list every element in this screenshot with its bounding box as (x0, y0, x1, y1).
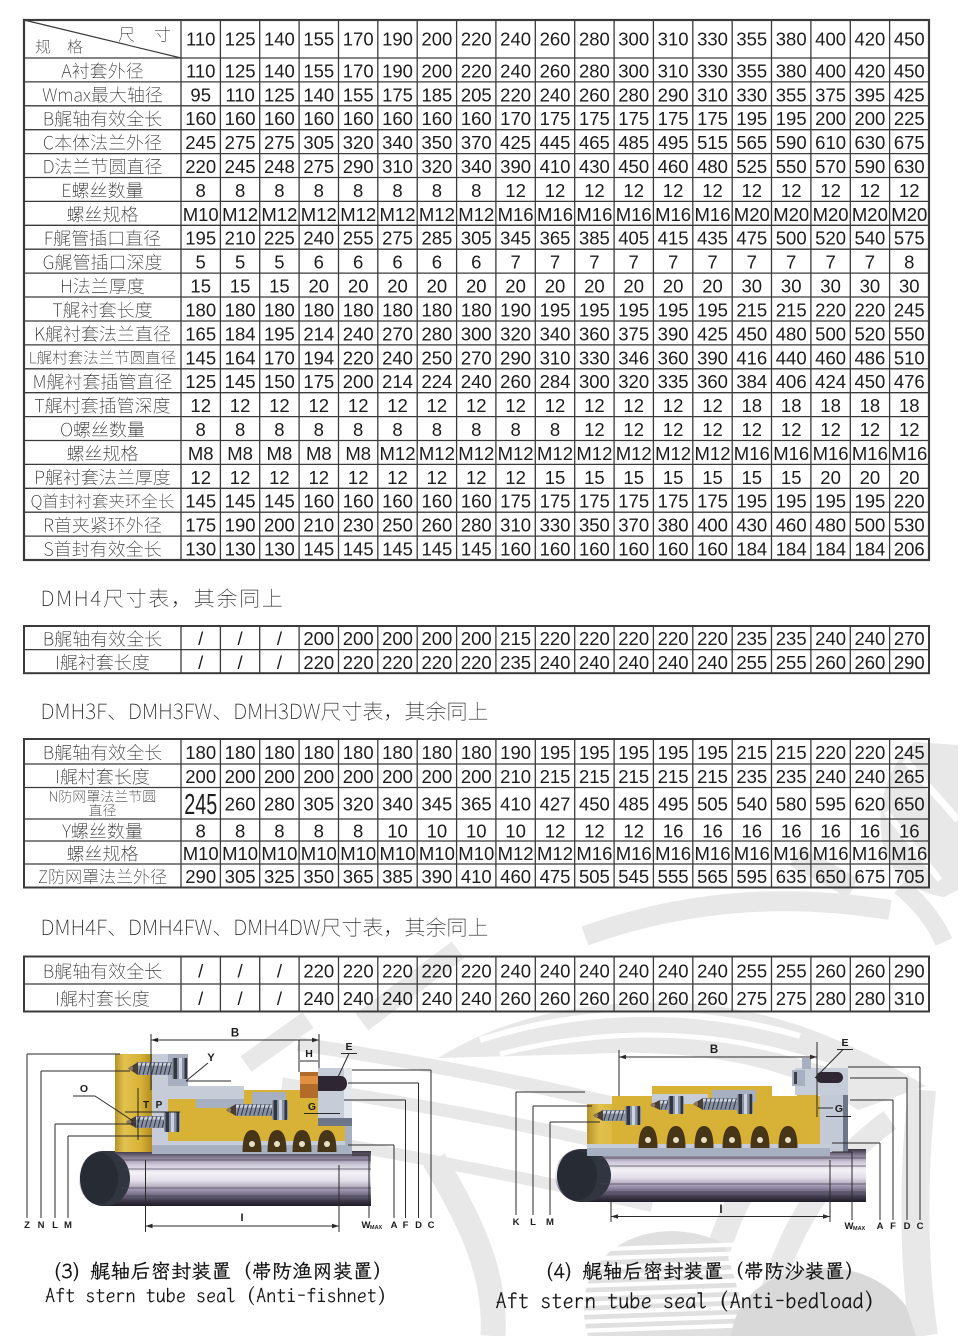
svg-text:240: 240 (658, 961, 689, 982)
svg-text:240: 240 (579, 652, 610, 673)
svg-text:M20: M20 (813, 204, 849, 225)
svg-text:C: C (428, 1220, 435, 1231)
svg-text:N: N (38, 1220, 45, 1231)
svg-text:480: 480 (776, 323, 807, 344)
svg-text:630: 630 (894, 156, 925, 177)
svg-text:515: 515 (697, 132, 728, 153)
svg-text:240: 240 (500, 60, 531, 81)
svg-text:12: 12 (269, 395, 290, 416)
svg-text:12: 12 (702, 180, 723, 201)
svg-text:8: 8 (274, 419, 284, 440)
svg-text:195: 195 (697, 300, 728, 321)
svg-text:140: 140 (264, 29, 295, 50)
svg-text:215: 215 (736, 300, 767, 321)
svg-text:300: 300 (618, 29, 649, 50)
svg-text:240: 240 (500, 29, 531, 50)
svg-text:275: 275 (736, 988, 767, 1009)
svg-text:7: 7 (825, 252, 835, 273)
svg-text:425: 425 (894, 84, 925, 105)
svg-text:110: 110 (186, 29, 216, 50)
svg-text:M10: M10 (380, 843, 416, 864)
svg-text:180: 180 (382, 742, 413, 763)
svg-text:125: 125 (185, 371, 216, 392)
svg-text:590: 590 (854, 156, 885, 177)
svg-text:8: 8 (274, 180, 284, 201)
svg-text:240: 240 (461, 371, 492, 392)
svg-text:M16: M16 (576, 204, 612, 225)
svg-text:15: 15 (190, 276, 211, 297)
svg-text:M12: M12 (576, 443, 612, 464)
svg-text:406: 406 (776, 371, 807, 392)
svg-text:495: 495 (658, 794, 689, 815)
svg-text:125: 125 (225, 29, 256, 50)
svg-text:195: 195 (776, 108, 807, 129)
svg-text:395: 395 (854, 84, 885, 105)
svg-text:5: 5 (235, 252, 245, 273)
svg-text:8: 8 (471, 419, 481, 440)
svg-text:220: 220 (382, 652, 413, 673)
svg-text:280: 280 (461, 515, 492, 536)
svg-text:30: 30 (820, 276, 841, 297)
svg-text:275: 275 (303, 156, 334, 177)
svg-text:190: 190 (225, 515, 256, 536)
svg-text:8: 8 (235, 419, 245, 440)
svg-text:175: 175 (303, 371, 334, 392)
svg-text:7: 7 (668, 252, 678, 273)
svg-text:145: 145 (461, 539, 492, 560)
svg-text:M16: M16 (616, 843, 652, 864)
svg-text:260: 260 (815, 652, 846, 673)
svg-text:290: 290 (185, 866, 216, 887)
svg-text:145: 145 (185, 347, 216, 368)
svg-text:155: 155 (303, 60, 334, 81)
svg-text:245: 245 (225, 156, 256, 177)
svg-text:M12: M12 (222, 204, 258, 225)
svg-text:240: 240 (618, 652, 649, 673)
svg-text:12: 12 (427, 395, 448, 416)
svg-text:184: 184 (854, 539, 885, 560)
svg-text:12: 12 (820, 180, 841, 201)
svg-text:190: 190 (500, 300, 531, 321)
svg-text:145: 145 (343, 539, 374, 560)
svg-text:310: 310 (540, 347, 571, 368)
svg-text:365: 365 (461, 794, 492, 815)
svg-text:235: 235 (776, 766, 807, 787)
svg-text:260: 260 (540, 988, 571, 1009)
svg-text:495: 495 (658, 132, 689, 153)
svg-text:M16: M16 (655, 843, 691, 864)
svg-text:H: H (305, 1048, 313, 1060)
svg-text:280: 280 (421, 323, 452, 344)
svg-text:165: 165 (185, 323, 216, 344)
svg-text:195: 195 (579, 300, 610, 321)
svg-text:180: 180 (185, 300, 216, 321)
svg-text:15: 15 (230, 276, 251, 297)
svg-text:450: 450 (894, 60, 925, 81)
svg-text:170: 170 (500, 108, 531, 129)
svg-text:420: 420 (854, 60, 885, 81)
svg-text:/: / (277, 961, 283, 982)
svg-text:A: A (877, 1221, 884, 1232)
svg-text:8: 8 (392, 419, 402, 440)
svg-text:160: 160 (382, 108, 413, 129)
svg-text:260: 260 (697, 988, 728, 1009)
svg-text:M12: M12 (616, 443, 652, 464)
svg-text:235: 235 (736, 766, 767, 787)
svg-text:16: 16 (820, 821, 841, 842)
svg-text:500: 500 (854, 515, 885, 536)
svg-text:200: 200 (264, 515, 295, 536)
svg-text:175: 175 (579, 491, 610, 512)
svg-text:12: 12 (545, 821, 566, 842)
svg-text:M10: M10 (301, 843, 337, 864)
svg-text:170: 170 (264, 347, 295, 368)
svg-text:220: 220 (894, 491, 925, 512)
svg-text:12: 12 (190, 395, 211, 416)
svg-text:486: 486 (854, 347, 885, 368)
svg-text:8: 8 (353, 419, 363, 440)
svg-text:305: 305 (461, 228, 492, 249)
svg-text:I: I (240, 1212, 243, 1224)
svg-text:8: 8 (196, 419, 206, 440)
svg-text:195: 195 (264, 323, 295, 344)
svg-text:15: 15 (702, 467, 723, 488)
svg-text:12: 12 (663, 395, 684, 416)
svg-text:M10: M10 (340, 843, 376, 864)
svg-text:175: 175 (697, 108, 728, 129)
svg-text:M12: M12 (340, 204, 376, 225)
svg-text:565: 565 (736, 132, 767, 153)
svg-text:145: 145 (225, 371, 256, 392)
svg-text:220: 220 (461, 652, 492, 673)
svg-text:F: F (890, 1221, 896, 1232)
svg-text:12: 12 (387, 467, 408, 488)
svg-text:215: 215 (776, 742, 807, 763)
svg-text:280: 280 (618, 84, 649, 105)
svg-text:12: 12 (309, 467, 330, 488)
svg-text:205: 205 (461, 84, 492, 105)
svg-text:345: 345 (421, 794, 452, 815)
svg-text:550: 550 (894, 323, 925, 344)
svg-text:275: 275 (776, 988, 807, 1009)
svg-text:220: 220 (697, 628, 728, 649)
svg-text:12: 12 (505, 395, 526, 416)
svg-text:255: 255 (736, 652, 767, 673)
svg-text:20: 20 (663, 276, 684, 297)
svg-text:160: 160 (303, 491, 334, 512)
svg-text:M12: M12 (419, 443, 455, 464)
svg-text:355: 355 (776, 84, 807, 105)
svg-text:175: 175 (540, 108, 571, 129)
svg-text:160: 160 (461, 491, 492, 512)
svg-text:248: 248 (264, 156, 295, 177)
svg-text:450: 450 (579, 794, 610, 815)
svg-text:345: 345 (500, 228, 531, 249)
svg-text:240: 240 (303, 228, 334, 249)
svg-text:M16: M16 (655, 204, 691, 225)
svg-text:240: 240 (815, 766, 846, 787)
svg-text:M12: M12 (458, 204, 494, 225)
svg-text:195: 195 (776, 491, 807, 512)
svg-text:M8: M8 (345, 443, 371, 464)
svg-text:12: 12 (742, 419, 763, 440)
svg-text:330: 330 (697, 60, 728, 81)
svg-text:20: 20 (545, 276, 566, 297)
svg-text:705: 705 (894, 866, 925, 887)
svg-text:400: 400 (815, 60, 846, 81)
svg-text:220: 220 (461, 60, 492, 81)
svg-text:465: 465 (579, 132, 610, 153)
svg-text:200: 200 (854, 108, 885, 129)
svg-text:G: G (308, 1101, 316, 1113)
svg-text:365: 365 (540, 228, 571, 249)
svg-text:180: 180 (303, 742, 334, 763)
svg-text:M12: M12 (498, 843, 534, 864)
svg-text:/: / (277, 988, 283, 1009)
svg-text:240: 240 (382, 988, 413, 1009)
svg-text:184: 184 (776, 539, 807, 560)
svg-text:330: 330 (736, 84, 767, 105)
svg-text:440: 440 (776, 347, 807, 368)
svg-text:7: 7 (747, 252, 757, 273)
svg-text:95: 95 (190, 84, 211, 105)
svg-text:12: 12 (623, 180, 644, 201)
svg-text:280: 280 (264, 794, 295, 815)
svg-text:16: 16 (742, 821, 763, 842)
svg-text:F: F (403, 1220, 409, 1231)
svg-text:330: 330 (540, 515, 571, 536)
svg-text:370: 370 (618, 515, 649, 536)
svg-text:20: 20 (387, 276, 408, 297)
svg-text:200: 200 (461, 628, 492, 649)
svg-text:180: 180 (264, 300, 295, 321)
svg-text:M8: M8 (306, 443, 332, 464)
svg-text:7: 7 (550, 252, 560, 273)
svg-text:340: 340 (461, 156, 492, 177)
svg-text:195: 195 (618, 742, 649, 763)
svg-text:8: 8 (235, 821, 245, 842)
svg-text:175: 175 (579, 108, 610, 129)
svg-text:460: 460 (815, 347, 846, 368)
svg-text:12: 12 (505, 180, 526, 201)
svg-text:8: 8 (432, 180, 442, 201)
svg-text:430: 430 (579, 156, 610, 177)
svg-text:195: 195 (540, 742, 571, 763)
svg-text:220: 220 (461, 29, 492, 50)
svg-text:200: 200 (461, 766, 492, 787)
svg-text:260: 260 (854, 961, 885, 982)
svg-text:305: 305 (303, 794, 334, 815)
svg-text:12: 12 (427, 467, 448, 488)
svg-text:180: 180 (225, 742, 256, 763)
svg-text:390: 390 (658, 323, 689, 344)
svg-text:235: 235 (500, 652, 531, 673)
svg-text:C: C (917, 1221, 924, 1232)
svg-text:/: / (198, 961, 204, 982)
svg-text:184: 184 (225, 323, 256, 344)
svg-text:15: 15 (623, 467, 644, 488)
svg-text:12: 12 (860, 419, 881, 440)
svg-text:185: 185 (421, 84, 452, 105)
svg-text:180: 180 (382, 300, 413, 321)
svg-text:200: 200 (421, 628, 452, 649)
svg-text:260: 260 (579, 84, 610, 105)
svg-text:450: 450 (894, 29, 925, 50)
svg-text:194: 194 (303, 347, 334, 368)
svg-text:M8: M8 (267, 443, 293, 464)
svg-text:M16: M16 (576, 843, 612, 864)
svg-text:184: 184 (815, 539, 846, 560)
svg-text:290: 290 (658, 84, 689, 105)
svg-text:320: 320 (421, 156, 452, 177)
svg-text:M12: M12 (380, 443, 416, 464)
svg-text:220: 220 (185, 156, 216, 177)
svg-text:8: 8 (235, 180, 245, 201)
svg-text:125: 125 (264, 84, 295, 105)
svg-text:145: 145 (421, 539, 452, 560)
svg-text:220: 220 (540, 628, 571, 649)
svg-text:220: 220 (500, 84, 531, 105)
svg-text:195: 195 (736, 108, 767, 129)
svg-text:MAX: MAX (370, 1225, 383, 1231)
svg-text:8: 8 (353, 821, 363, 842)
svg-text:/: / (277, 628, 283, 649)
svg-text:30: 30 (899, 276, 920, 297)
svg-text:475: 475 (540, 866, 571, 887)
svg-text:18: 18 (742, 395, 763, 416)
svg-text:12: 12 (702, 419, 723, 440)
svg-text:P: P (156, 1100, 163, 1111)
svg-text:M10: M10 (419, 843, 455, 864)
svg-text:350: 350 (579, 515, 610, 536)
svg-text:12: 12 (820, 419, 841, 440)
svg-text:M16: M16 (852, 843, 888, 864)
svg-text:260: 260 (540, 60, 571, 81)
svg-text:650: 650 (894, 794, 925, 815)
svg-text:B: B (231, 1028, 239, 1040)
svg-text:160: 160 (500, 539, 531, 560)
svg-text:220: 220 (579, 628, 610, 649)
svg-text:175: 175 (658, 491, 689, 512)
svg-text:300: 300 (461, 323, 492, 344)
svg-text:240: 240 (618, 961, 649, 982)
svg-text:240: 240 (854, 766, 885, 787)
svg-text:284: 284 (540, 371, 571, 392)
svg-text:460: 460 (500, 866, 531, 887)
svg-text:610: 610 (815, 132, 846, 153)
svg-text:520: 520 (854, 323, 885, 344)
svg-text:275: 275 (264, 132, 295, 153)
svg-text:180: 180 (185, 742, 216, 763)
svg-text:220: 220 (658, 628, 689, 649)
svg-text:427: 427 (540, 794, 571, 815)
svg-text:575: 575 (894, 228, 925, 249)
svg-text:240: 240 (303, 988, 334, 1009)
svg-text:425: 425 (697, 323, 728, 344)
svg-text:8: 8 (432, 419, 442, 440)
svg-text:M10: M10 (261, 843, 297, 864)
svg-text:270: 270 (894, 628, 925, 649)
svg-text:200: 200 (343, 766, 374, 787)
svg-text:215: 215 (540, 766, 571, 787)
svg-text:240: 240 (658, 652, 689, 673)
svg-text:195: 195 (658, 742, 689, 763)
svg-text:450: 450 (618, 156, 649, 177)
svg-text:200: 200 (225, 766, 256, 787)
svg-text:12: 12 (230, 395, 251, 416)
svg-text:390: 390 (697, 347, 728, 368)
svg-text:180: 180 (343, 300, 374, 321)
svg-text:350: 350 (421, 132, 452, 153)
svg-text:16: 16 (860, 821, 881, 842)
svg-text:650: 650 (815, 866, 846, 887)
svg-text:275: 275 (382, 228, 413, 249)
svg-text:12: 12 (584, 395, 605, 416)
svg-text:12: 12 (584, 419, 605, 440)
svg-text:12: 12 (466, 467, 487, 488)
svg-text:M10: M10 (183, 204, 219, 225)
svg-text:360: 360 (658, 347, 689, 368)
svg-text:300: 300 (618, 60, 649, 81)
svg-text:390: 390 (500, 156, 531, 177)
svg-text:500: 500 (815, 323, 846, 344)
svg-text:260: 260 (658, 988, 689, 1009)
svg-text:240: 240 (540, 84, 571, 105)
svg-text:200: 200 (382, 628, 413, 649)
svg-text:12: 12 (781, 419, 802, 440)
svg-text:635: 635 (776, 866, 807, 887)
svg-text:280: 280 (579, 60, 610, 81)
svg-text:110: 110 (225, 84, 255, 105)
svg-text:190: 190 (500, 742, 531, 763)
svg-text:630: 630 (854, 132, 885, 153)
svg-text:175: 175 (382, 84, 413, 105)
svg-text:400: 400 (815, 29, 846, 50)
svg-text:M12: M12 (537, 443, 573, 464)
svg-text:195: 195 (697, 742, 728, 763)
svg-text:12: 12 (623, 395, 644, 416)
svg-text:20: 20 (860, 467, 881, 488)
svg-text:M: M (64, 1220, 72, 1231)
svg-text:460: 460 (658, 156, 689, 177)
svg-text:12: 12 (623, 419, 644, 440)
svg-text:220: 220 (421, 652, 452, 673)
svg-text:M16: M16 (616, 204, 652, 225)
svg-text:12: 12 (190, 467, 211, 488)
svg-text:195: 195 (185, 228, 216, 249)
svg-text:340: 340 (382, 794, 413, 815)
svg-text:220: 220 (854, 742, 885, 763)
svg-text:8: 8 (392, 180, 402, 201)
svg-text:160: 160 (382, 491, 413, 512)
svg-text:12: 12 (348, 395, 369, 416)
svg-text:420: 420 (854, 29, 885, 50)
svg-text:195: 195 (579, 742, 610, 763)
svg-text:200: 200 (421, 766, 452, 787)
svg-text:180: 180 (343, 742, 374, 763)
svg-text:8: 8 (353, 180, 363, 201)
svg-text:405: 405 (618, 228, 649, 249)
svg-text:220: 220 (303, 652, 334, 673)
svg-text:20: 20 (466, 276, 487, 297)
svg-text:A: A (391, 1220, 398, 1231)
svg-text:240: 240 (382, 347, 413, 368)
svg-text:350: 350 (303, 866, 334, 887)
svg-text:200: 200 (343, 371, 374, 392)
svg-text:20: 20 (427, 276, 448, 297)
svg-text:M: M (546, 1217, 554, 1228)
svg-text:410: 410 (540, 156, 571, 177)
